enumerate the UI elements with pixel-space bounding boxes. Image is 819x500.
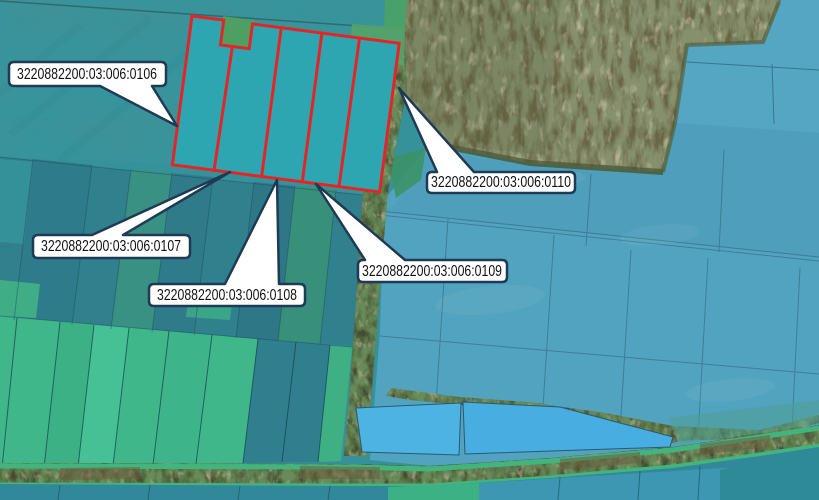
svg-text:3220882200:03:006:0107: 3220882200:03:006:0107 (41, 238, 181, 255)
svg-text:3220882200:03:006:0106: 3220882200:03:006:0106 (17, 66, 157, 83)
svg-text:3220882200:03:006:0108: 3220882200:03:006:0108 (157, 287, 297, 304)
svg-text:3220882200:03:006:0110: 3220882200:03:006:0110 (431, 174, 571, 191)
svg-text:3220882200:03:006:0109: 3220882200:03:006:0109 (362, 263, 502, 280)
